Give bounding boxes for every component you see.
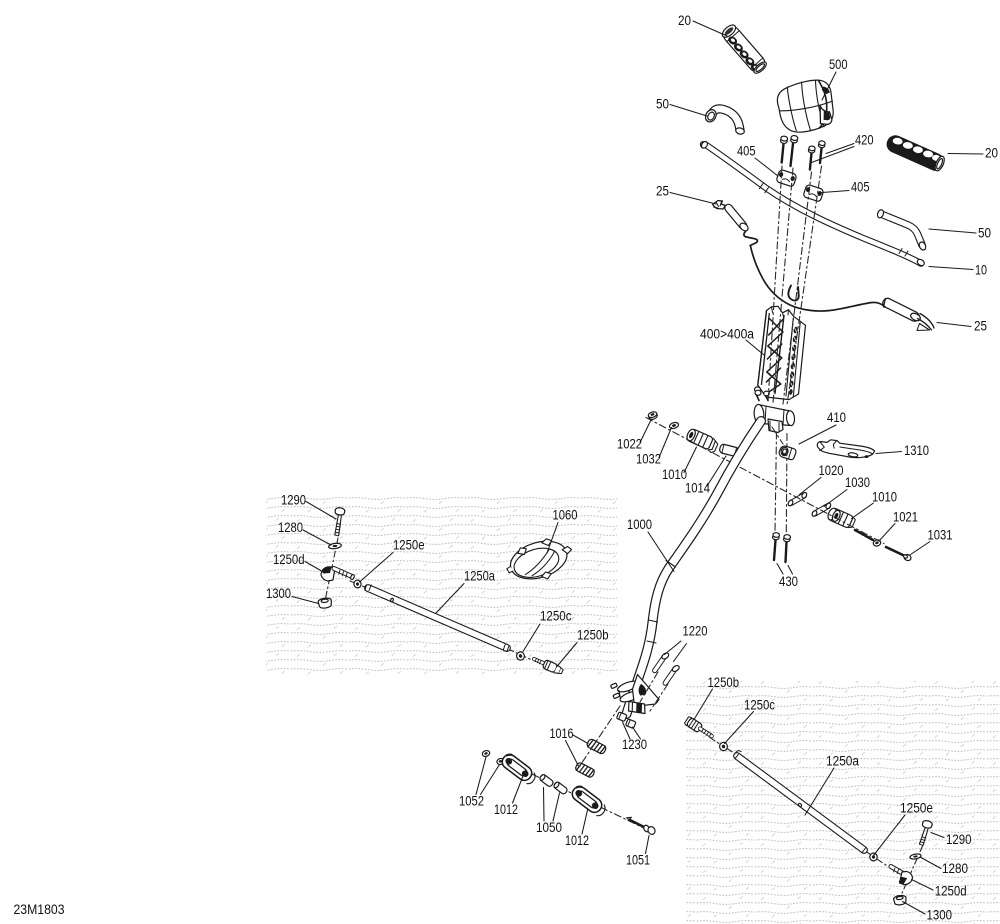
svg-text:1280: 1280 bbox=[278, 520, 303, 535]
svg-text:20: 20 bbox=[985, 146, 998, 161]
svg-text:405: 405 bbox=[851, 180, 870, 195]
svg-text:1250e: 1250e bbox=[900, 801, 933, 816]
svg-text:1250d: 1250d bbox=[935, 884, 967, 899]
svg-text:25: 25 bbox=[974, 319, 987, 334]
svg-text:410: 410 bbox=[827, 410, 846, 425]
svg-text:1250a: 1250a bbox=[826, 754, 859, 769]
svg-text:1300: 1300 bbox=[927, 908, 953, 923]
svg-text:420: 420 bbox=[855, 133, 874, 148]
svg-text:1250c: 1250c bbox=[540, 609, 572, 624]
svg-text:1022: 1022 bbox=[617, 437, 642, 452]
svg-text:1280: 1280 bbox=[942, 861, 968, 876]
svg-text:20: 20 bbox=[678, 13, 691, 28]
svg-text:1016: 1016 bbox=[550, 726, 574, 741]
svg-text:1250b: 1250b bbox=[577, 628, 609, 643]
svg-text:1020: 1020 bbox=[819, 463, 844, 478]
svg-text:1052: 1052 bbox=[459, 794, 484, 809]
svg-text:1010: 1010 bbox=[662, 467, 687, 482]
svg-text:400>400a: 400>400a bbox=[700, 327, 754, 342]
svg-text:50: 50 bbox=[978, 226, 991, 241]
svg-text:405: 405 bbox=[737, 144, 756, 159]
svg-text:10: 10 bbox=[975, 263, 987, 278]
svg-text:1051: 1051 bbox=[626, 853, 650, 868]
svg-text:1012: 1012 bbox=[494, 802, 518, 817]
svg-text:1250d: 1250d bbox=[273, 552, 305, 567]
svg-text:50: 50 bbox=[656, 97, 669, 112]
svg-text:430: 430 bbox=[779, 574, 798, 589]
svg-text:1250b: 1250b bbox=[708, 675, 740, 690]
svg-text:25: 25 bbox=[656, 184, 669, 199]
svg-text:1300: 1300 bbox=[266, 586, 291, 601]
svg-text:1310: 1310 bbox=[904, 443, 929, 458]
svg-text:1220: 1220 bbox=[683, 624, 708, 639]
svg-text:1250c: 1250c bbox=[744, 698, 775, 713]
svg-text:1290: 1290 bbox=[281, 493, 306, 508]
svg-text:1060: 1060 bbox=[553, 508, 578, 523]
svg-text:23M1803: 23M1803 bbox=[14, 902, 65, 917]
svg-text:1031: 1031 bbox=[928, 528, 953, 543]
svg-text:1032: 1032 bbox=[636, 452, 661, 467]
svg-text:1014: 1014 bbox=[685, 481, 710, 496]
svg-text:1021: 1021 bbox=[893, 510, 918, 525]
svg-text:1290: 1290 bbox=[946, 832, 972, 847]
svg-text:500: 500 bbox=[829, 57, 848, 72]
svg-text:1012: 1012 bbox=[565, 833, 589, 848]
svg-text:1050: 1050 bbox=[536, 820, 562, 835]
svg-text:1250e: 1250e bbox=[393, 538, 425, 553]
svg-text:1030: 1030 bbox=[845, 475, 870, 490]
svg-text:1230: 1230 bbox=[622, 737, 647, 752]
svg-text:1250a: 1250a bbox=[464, 569, 495, 584]
svg-text:1010: 1010 bbox=[872, 490, 897, 505]
svg-text:1000: 1000 bbox=[627, 517, 652, 532]
